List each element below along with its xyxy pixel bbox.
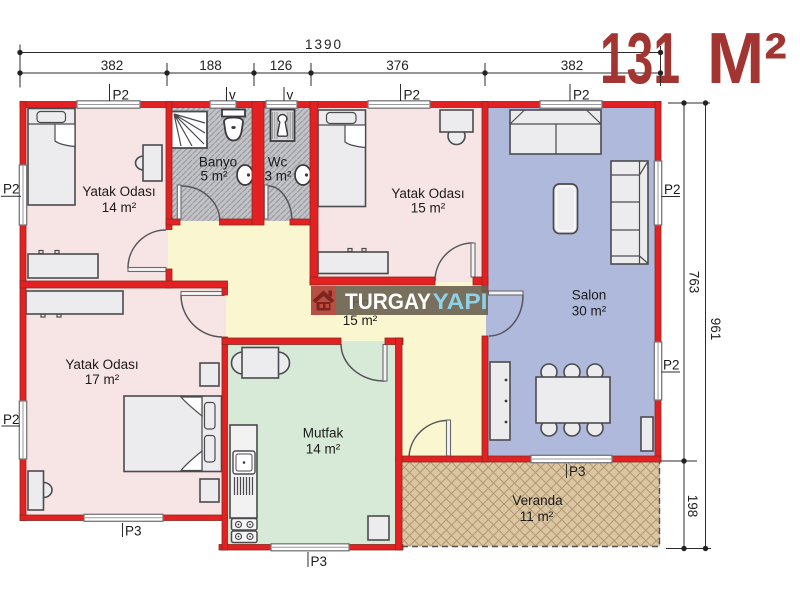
svg-text:188: 188 bbox=[199, 58, 222, 73]
svg-text:1390: 1390 bbox=[305, 37, 341, 52]
svg-text:P2: P2 bbox=[664, 182, 681, 197]
svg-text:5 m²: 5 m² bbox=[201, 169, 229, 184]
svg-text:Wc: Wc bbox=[268, 155, 288, 170]
svg-text:126: 126 bbox=[270, 58, 293, 73]
svg-text:Mutfak: Mutfak bbox=[303, 426, 344, 441]
svg-text:Yatak Odası: Yatak Odası bbox=[82, 184, 155, 199]
svg-text:TURGAY: TURGAY bbox=[345, 289, 431, 314]
svg-text:15 m²: 15 m² bbox=[343, 313, 378, 328]
svg-text:382: 382 bbox=[561, 58, 584, 73]
svg-text:Banyo: Banyo bbox=[199, 155, 237, 170]
svg-text:P2: P2 bbox=[3, 182, 20, 197]
svg-text:v: v bbox=[287, 88, 294, 103]
svg-text:P3: P3 bbox=[311, 554, 328, 569]
svg-text:P2: P2 bbox=[404, 88, 421, 103]
svg-text:P2: P2 bbox=[573, 88, 590, 103]
svg-text:P2: P2 bbox=[3, 412, 20, 427]
svg-text:Yatak Odası: Yatak Odası bbox=[391, 186, 464, 201]
svg-text:3 m²: 3 m² bbox=[265, 169, 293, 184]
svg-text:30 m²: 30 m² bbox=[572, 304, 607, 319]
svg-text:YAPI: YAPI bbox=[433, 289, 488, 314]
svg-text:P2: P2 bbox=[113, 88, 130, 103]
svg-text:P3: P3 bbox=[569, 464, 586, 479]
svg-text:382: 382 bbox=[101, 58, 124, 73]
svg-text:14 m²: 14 m² bbox=[306, 442, 341, 457]
svg-text:14 m²: 14 m² bbox=[102, 200, 137, 215]
svg-text:v: v bbox=[229, 88, 236, 103]
svg-text:15 m²: 15 m² bbox=[411, 201, 446, 216]
svg-text:Salon: Salon bbox=[572, 288, 607, 303]
svg-text:376: 376 bbox=[386, 58, 409, 73]
svg-text:Yatak Odası: Yatak Odası bbox=[65, 357, 138, 372]
svg-text:M²: M² bbox=[707, 19, 787, 99]
svg-text:Veranda: Veranda bbox=[512, 493, 563, 508]
svg-text:961: 961 bbox=[708, 318, 723, 341]
svg-text:763: 763 bbox=[687, 271, 702, 294]
svg-text:11 m²: 11 m² bbox=[520, 509, 554, 524]
svg-text:131: 131 bbox=[600, 19, 680, 99]
svg-text:P2: P2 bbox=[663, 358, 680, 373]
svg-text:198: 198 bbox=[685, 495, 700, 518]
svg-text:P3: P3 bbox=[125, 524, 142, 539]
svg-text:17 m²: 17 m² bbox=[85, 372, 120, 387]
